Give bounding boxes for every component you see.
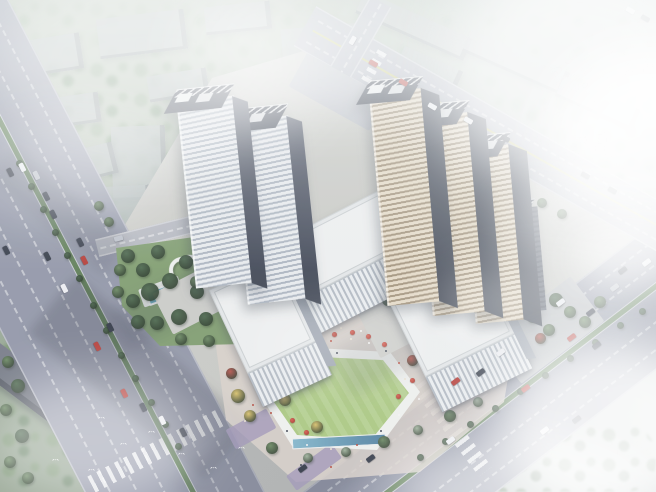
- global-haze-veil: [0, 0, 656, 492]
- fog-cloud: [0, 0, 360, 180]
- fog-cloud: [470, 320, 656, 492]
- top-haze-veil: [0, 0, 656, 492]
- fog-cloud: [0, 100, 190, 230]
- fog-atmosphere-layer: [0, 0, 656, 492]
- fog-cloud: [360, 420, 656, 492]
- right-haze-veil: [0, 0, 656, 492]
- fog-cloud: [560, 210, 656, 300]
- fog-cloud: [480, 160, 656, 290]
- fog-cloud: [400, 0, 656, 220]
- fog-cloud: [240, 300, 440, 390]
- fog-cloud: [150, 0, 490, 130]
- fog-cloud: [520, 20, 656, 260]
- fog-cloud: [0, 360, 220, 492]
- fog-cloud: [420, 250, 656, 360]
- aerial-rendering-stage: [0, 0, 656, 492]
